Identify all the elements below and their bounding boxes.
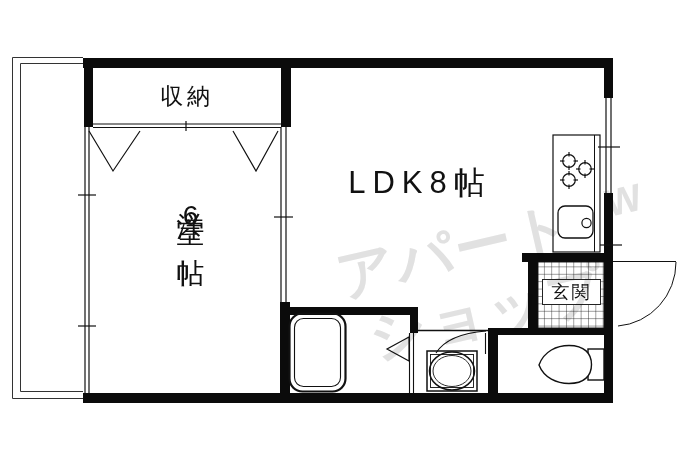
closet-room-label: 収納 xyxy=(131,81,243,112)
floor-plan-page: 収納 洋室6帖 LDK8帖 玄関 アパート ショップ W xyxy=(0,0,690,460)
floor-plan-drawing xyxy=(0,0,690,460)
window-west xyxy=(78,127,96,393)
kitchen-counter xyxy=(553,135,600,252)
washing-machine xyxy=(427,351,477,391)
balcony xyxy=(13,58,84,399)
sliding-partition xyxy=(274,127,293,302)
closet-doors xyxy=(89,121,281,171)
entrance-room-label: 玄関 xyxy=(542,279,601,305)
entrance-door xyxy=(613,262,676,327)
kitchen-sink-icon xyxy=(558,206,593,238)
ldk-room-label: LDK8帖 xyxy=(318,162,522,204)
western-room-label: 洋室6帖 xyxy=(170,190,210,340)
gas-stove-icon xyxy=(560,152,594,189)
bathroom-door xyxy=(387,333,414,393)
toilet xyxy=(539,346,604,384)
bathtub xyxy=(290,314,346,392)
